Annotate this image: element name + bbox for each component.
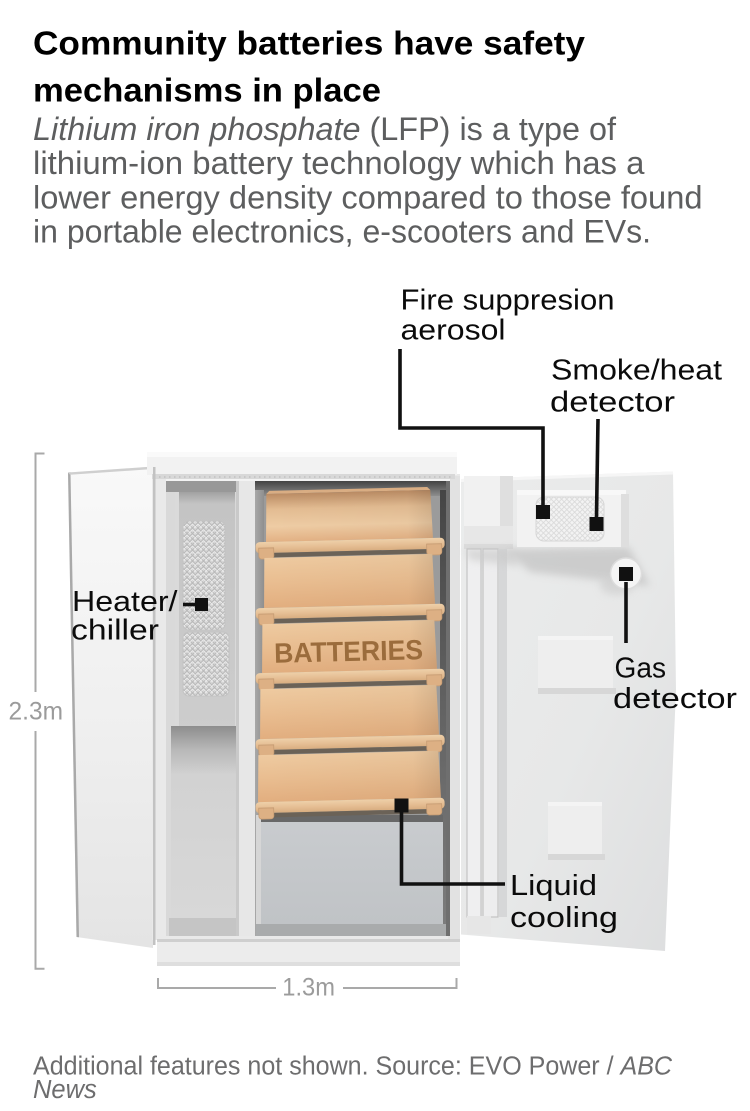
- svg-text:aerosol: aerosol: [401, 315, 506, 347]
- svg-text:detector: detector: [613, 683, 737, 715]
- svg-text:lower energy density compared: lower energy density compared to those f…: [33, 180, 703, 216]
- svg-text:cooling: cooling: [510, 902, 618, 934]
- svg-text:in portable electronics, e-sco: in portable electronics, e-scooters and …: [33, 214, 651, 250]
- svg-text:Gas: Gas: [615, 653, 667, 685]
- svg-text:BATTERIES: BATTERIES: [274, 634, 424, 669]
- svg-text:Additional features not shown.: Additional features not shown. Source: E…: [33, 1052, 673, 1080]
- svg-text:chiller: chiller: [71, 615, 159, 647]
- svg-text:Lithium iron phosphate (LFP) i: Lithium iron phosphate (LFP) is a type o…: [33, 111, 616, 147]
- svg-text:Heater/: Heater/: [72, 586, 179, 618]
- svg-text:mechanisms in place: mechanisms in place: [33, 72, 381, 109]
- svg-text:Community batteries have safet: Community batteries have safety: [33, 25, 586, 62]
- svg-text:detector: detector: [550, 387, 675, 419]
- svg-text:lithium-ion battery technology: lithium-ion battery technology which has…: [33, 145, 645, 181]
- svg-text:Smoke/heat: Smoke/heat: [551, 355, 722, 387]
- svg-text:Fire suppresion: Fire suppresion: [401, 285, 615, 317]
- svg-text:1.3m: 1.3m: [282, 974, 335, 1002]
- svg-text:Liquid: Liquid: [510, 870, 597, 902]
- svg-text:2.3m: 2.3m: [9, 698, 64, 726]
- svg-text:News: News: [33, 1076, 97, 1104]
